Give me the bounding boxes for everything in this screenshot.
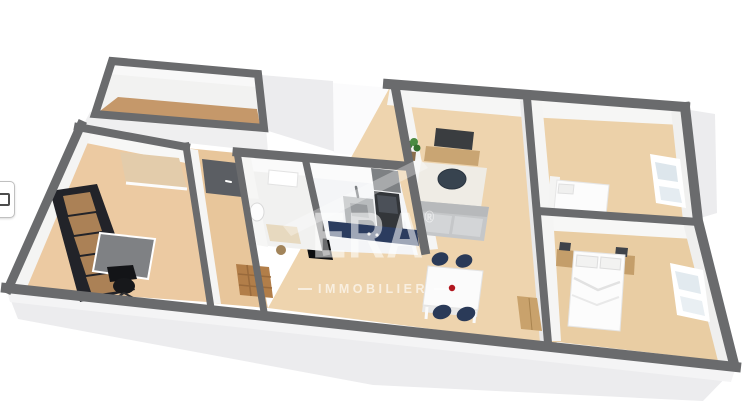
plant-foliage-3 xyxy=(414,145,421,152)
office-chair-seat xyxy=(113,278,135,294)
image-icon xyxy=(0,193,10,206)
bath-stool xyxy=(276,245,286,255)
coffee-table xyxy=(438,169,466,189)
dining-table-leg-1 xyxy=(426,307,427,319)
door-handle xyxy=(226,181,231,182)
counter-handle-2 xyxy=(375,233,378,236)
ne-bed-pillow xyxy=(558,184,574,194)
fridge-door-panel xyxy=(377,195,398,214)
se-bed-pillow-1 xyxy=(576,255,598,268)
toilet xyxy=(250,203,264,221)
nightstand-left-lamp xyxy=(559,242,571,251)
table-decor-dot xyxy=(449,285,455,291)
bookshelf-cell-1 xyxy=(63,192,96,215)
bathroom-shelf xyxy=(268,170,298,187)
sofa-cushion-2 xyxy=(452,216,483,237)
bookshelf-cell-2 xyxy=(68,213,102,235)
counter-handle-1 xyxy=(367,232,370,235)
gallery-thumb-button[interactable] xyxy=(0,181,15,218)
se-bed-pillow-2 xyxy=(600,257,621,270)
ground-plate-top xyxy=(261,75,336,152)
floorplan-3d-view: ERA® IMMOBILIER xyxy=(0,0,750,420)
floorplan-canvas xyxy=(0,0,750,420)
